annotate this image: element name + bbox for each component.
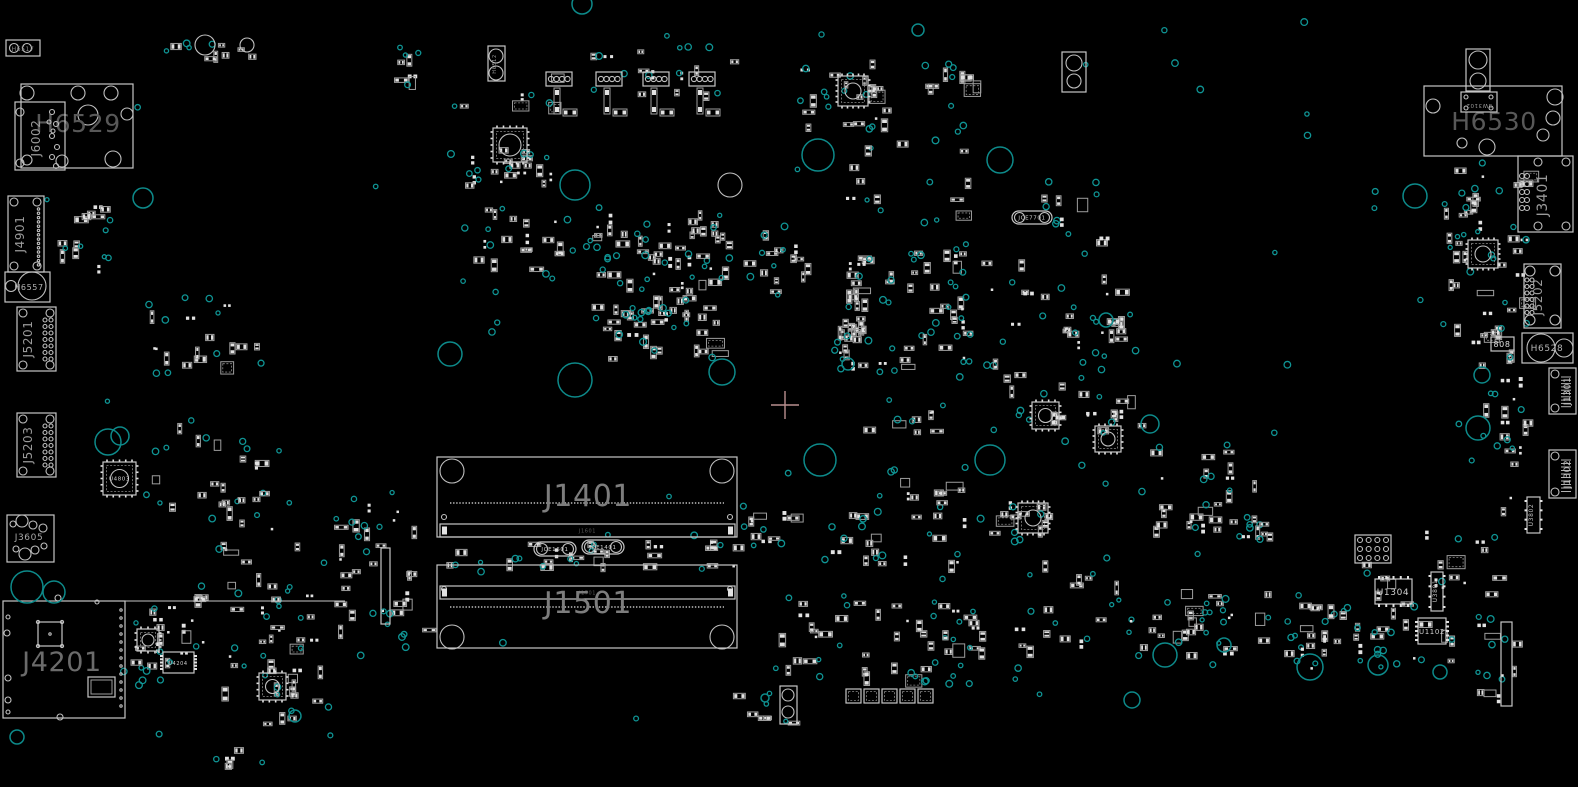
component-footprint (858, 363, 867, 368)
component-footprint (1483, 312, 1492, 315)
component-footprint (933, 535, 946, 541)
component-footprint (668, 223, 671, 233)
component-footprint (931, 411, 934, 414)
test-point (356, 534, 362, 540)
component-H6528[interactable]: H6528 (1522, 333, 1573, 363)
component-footprint (901, 478, 910, 487)
component-footprint (231, 663, 238, 667)
component-footprint (1224, 450, 1234, 454)
component-footprint (956, 561, 959, 564)
component-footprint (706, 338, 724, 348)
test-point (1237, 534, 1242, 539)
component-footprint (683, 296, 696, 301)
test-point (564, 216, 571, 223)
component-footprint (1300, 626, 1313, 632)
test-point (1476, 614, 1481, 619)
component-footprint (1056, 196, 1061, 206)
component-label: U1304 (1377, 588, 1410, 598)
test-point (878, 208, 883, 213)
component-footprint (839, 351, 842, 354)
test-point (1284, 361, 1291, 368)
component-label: J5203 (21, 426, 35, 464)
component-footprint (1189, 618, 1196, 626)
component-footprint (1077, 198, 1087, 211)
component-QF3[interactable] (1466, 238, 1501, 271)
test-point (156, 731, 162, 737)
component-footprint (953, 644, 965, 657)
component-footprint (1419, 621, 1432, 627)
component-footprint (648, 553, 662, 558)
mounting-hole (55, 595, 61, 601)
test-point (398, 45, 403, 50)
component-footprint (523, 219, 529, 227)
component-cluster (991, 359, 1146, 435)
component-JCE1601[interactable]: JCE1601 (534, 542, 576, 556)
test-point (960, 122, 966, 128)
component-footprint (466, 183, 474, 188)
test-point (946, 680, 953, 687)
component-J4901[interactable]: J4901 (8, 196, 44, 272)
component-footprint (908, 284, 913, 293)
component-footprint (854, 601, 866, 605)
test-point (892, 368, 897, 373)
component-footprint (1267, 533, 1273, 541)
component-footprint (517, 172, 526, 175)
component-footprint (906, 620, 909, 623)
component-QF8[interactable] (257, 671, 289, 703)
test-point (638, 317, 643, 322)
component-footprint (1161, 477, 1164, 480)
component-footprint (94, 205, 103, 209)
component-footprint (236, 344, 247, 350)
component-footprint (218, 43, 224, 47)
component-label: U3801 (1432, 580, 1439, 603)
test-point (242, 664, 246, 668)
test-point (321, 560, 326, 565)
component-footprint (1231, 614, 1234, 617)
test-point (1128, 312, 1133, 317)
component-footprint (269, 635, 273, 643)
component-footprint (924, 262, 930, 273)
component-H6517[interactable]: H6517 (6, 40, 40, 56)
component-QF5[interactable] (1093, 424, 1124, 455)
component-label: U1102 (1419, 628, 1445, 636)
component-footprint (1502, 406, 1508, 418)
component-footprint (1015, 628, 1025, 632)
test-point (865, 198, 869, 202)
test-point (1220, 608, 1225, 613)
component-label: J6002 (29, 119, 43, 157)
component-footprint (1507, 308, 1515, 312)
test-point (1204, 601, 1208, 605)
test-point (642, 252, 649, 259)
test-point (1439, 578, 1445, 584)
component-footprint (191, 619, 194, 622)
component-footprint (857, 317, 866, 321)
test-point (373, 184, 377, 188)
component-label: J1302 (1563, 460, 1573, 490)
test-point (258, 360, 264, 366)
test-point (189, 418, 194, 423)
component-footprint (526, 234, 529, 244)
test-point (961, 359, 966, 364)
component-cluster (715, 223, 787, 297)
component-footprint (182, 362, 191, 368)
component-footprint (603, 55, 613, 58)
component-footprint (1377, 627, 1389, 632)
test-point (1503, 300, 1507, 304)
component-footprint (698, 211, 702, 220)
via-circle (804, 444, 836, 476)
component-footprint (1501, 421, 1510, 425)
component-footprint (412, 526, 417, 538)
test-point (1028, 608, 1034, 614)
test-point (1132, 347, 1138, 353)
test-point (364, 549, 370, 555)
test-point (260, 760, 265, 765)
component-footprint (306, 595, 313, 598)
component-footprint (747, 712, 757, 717)
test-point (751, 543, 755, 547)
test-point (678, 46, 682, 50)
test-point (644, 221, 650, 227)
component-X808[interactable]: 808 (1491, 337, 1514, 351)
component-footprint (621, 231, 627, 237)
via-circle (1368, 655, 1388, 675)
test-point (1080, 359, 1086, 365)
component-footprint (1015, 372, 1026, 377)
test-point (232, 645, 238, 651)
component-J3401[interactable]: J3401 (1518, 156, 1573, 232)
component-label: JCE1401 (588, 545, 616, 551)
component-cluster (584, 205, 722, 322)
component-H6512[interactable]: H6512 (488, 46, 505, 81)
component-footprint (1391, 608, 1395, 619)
component-footprint (819, 631, 833, 637)
testpoint-scatter (45, 19, 1505, 737)
test-point (596, 205, 602, 211)
component-footprint (1130, 620, 1133, 623)
test-point (1322, 619, 1328, 625)
test-point (706, 44, 713, 51)
component-cluster (1139, 442, 1263, 539)
component-label: J5201 (21, 320, 35, 358)
board-canvas[interactable]: H6517H6529J6002J4901H6557J5201J5203J3605… (0, 0, 1578, 787)
component-footprint (502, 236, 512, 242)
component-footprint (1106, 293, 1109, 296)
component-footprint (1041, 294, 1049, 299)
component-footprint (1455, 168, 1466, 174)
via-circle (95, 429, 121, 455)
component-footprint (170, 503, 176, 511)
component-footprint (1513, 398, 1516, 401)
test-point (264, 614, 270, 620)
component-PG1[interactable] (1355, 535, 1391, 563)
component-footprint (1201, 524, 1205, 534)
component-footprint (339, 545, 344, 557)
component-footprint (1004, 375, 1010, 382)
component-footprint (659, 243, 671, 249)
test-point (1103, 481, 1108, 486)
test-point (1084, 636, 1089, 641)
component-footprint (456, 549, 467, 555)
component-footprint (654, 545, 663, 548)
component-footprint (1258, 638, 1269, 643)
component-footprint (1306, 643, 1314, 648)
component-footprint (224, 304, 231, 307)
component-J5201[interactable]: J5201 (17, 307, 56, 371)
test-point (1066, 232, 1071, 237)
test-point (214, 351, 220, 357)
test-point (890, 346, 895, 351)
test-point (1043, 204, 1049, 210)
test-point (957, 374, 963, 380)
component-J1301[interactable]: J1301 (1549, 368, 1576, 414)
component-footprint (806, 124, 811, 131)
test-point (951, 637, 955, 641)
component-footprint (952, 610, 959, 613)
component-footprint (921, 666, 931, 671)
test-point (817, 674, 823, 680)
component-JCE7701[interactable]: JCE7701 (1012, 211, 1052, 224)
power-header-footprint (596, 72, 627, 116)
component-footprint (914, 430, 920, 435)
component-footprint (257, 574, 261, 587)
component-footprint (1260, 522, 1269, 526)
component-U3801[interactable]: U3801 (1429, 572, 1446, 611)
test-point (798, 98, 804, 104)
test-point (334, 516, 338, 520)
component-J3605[interactable]: J3605 (7, 515, 54, 562)
component-footprint (500, 181, 503, 184)
test-point (487, 242, 493, 248)
test-point (63, 246, 67, 250)
test-point (45, 198, 49, 202)
test-point (950, 65, 956, 71)
component-footprint (863, 77, 867, 85)
component-U4803[interactable]: U4803 (101, 460, 139, 498)
test-point (685, 44, 691, 50)
component-footprint (805, 263, 811, 274)
component-cluster (846, 122, 971, 220)
component-footprint (171, 43, 181, 49)
test-point (377, 524, 382, 529)
component-DC2[interactable] (1466, 49, 1490, 91)
test-point (165, 370, 170, 375)
test-point (715, 90, 720, 95)
via-circle (975, 445, 1005, 475)
component-footprint (960, 252, 967, 256)
component-label: J1601 (578, 529, 596, 535)
component-footprint (1187, 629, 1196, 635)
component-U3802[interactable]: U3802 (1525, 497, 1543, 533)
component-footprint (1501, 379, 1510, 382)
test-point (835, 339, 841, 345)
component-footprint (153, 618, 163, 622)
component-cluster (448, 92, 561, 188)
component-footprint (721, 233, 725, 240)
test-point (1102, 354, 1106, 358)
component-footprint (1087, 414, 1090, 417)
component-footprint (969, 620, 979, 626)
component-cluster (146, 295, 260, 377)
test-point (684, 321, 689, 326)
test-point (1175, 639, 1181, 645)
component-footprint (471, 156, 474, 165)
test-point (1139, 488, 1145, 494)
component-footprint (1101, 331, 1104, 334)
component-footprint (793, 658, 801, 664)
test-point (630, 306, 635, 311)
test-point (1463, 205, 1469, 211)
component-label: U4204 (168, 661, 187, 667)
component-J1401[interactable]: J1601J1401 (437, 457, 737, 537)
test-point (1273, 250, 1277, 254)
component-footprint (1120, 410, 1124, 419)
component-footprint (1173, 631, 1181, 643)
component-label: H6530 (1451, 107, 1536, 136)
component-footprint (131, 660, 142, 665)
component-footprint (1190, 514, 1203, 520)
component-DC3[interactable] (780, 686, 797, 724)
via-circle (572, 0, 592, 14)
component-footprint (786, 665, 791, 675)
test-point (740, 503, 746, 509)
component-J5203[interactable]: J5203 (17, 413, 56, 477)
test-point (493, 289, 498, 294)
component-footprint (614, 305, 618, 315)
test-point (940, 576, 945, 581)
component-footprint (293, 669, 302, 673)
component-footprint (396, 511, 399, 514)
component-J1501[interactable]: J1701J1501 (437, 565, 737, 649)
component-cluster (58, 205, 113, 273)
component-footprint (1493, 576, 1507, 581)
test-point (1247, 525, 1253, 531)
test-point (244, 446, 250, 452)
via-circle (709, 359, 735, 385)
component-footprint (153, 347, 156, 350)
component-footprint (196, 435, 200, 447)
test-point (157, 677, 163, 683)
component-footprint (1513, 249, 1522, 254)
component-footprint (853, 337, 861, 343)
test-point (1442, 202, 1447, 207)
component-label: JCE1601 (540, 547, 568, 553)
mounting-hole (240, 38, 254, 52)
component-footprint (627, 333, 638, 337)
component-footprint (393, 519, 396, 522)
test-point (880, 297, 887, 304)
test-point (153, 370, 159, 376)
component-footprint (1077, 575, 1082, 586)
via-circle (438, 342, 462, 366)
component-footprint (222, 52, 229, 58)
component-J4201[interactable]: J4201 (3, 601, 125, 720)
test-point (416, 50, 421, 55)
component-label: H6512 (492, 54, 498, 73)
component-footprint (733, 693, 745, 698)
component-footprint (491, 259, 497, 272)
test-point (357, 652, 363, 658)
component-footprint (810, 95, 816, 108)
via-circle (802, 139, 834, 171)
test-point (1098, 366, 1104, 372)
component-footprint (878, 561, 886, 565)
test-point (877, 369, 883, 375)
component-footprint (892, 604, 902, 608)
component-cluster (798, 60, 892, 132)
component-footprint (1300, 603, 1312, 609)
component-footprint (857, 263, 865, 266)
test-point (594, 244, 600, 250)
component-footprint (638, 50, 644, 54)
component-footprint (1255, 613, 1264, 625)
test-point (966, 681, 972, 687)
test-point (1174, 360, 1181, 367)
component-DC1[interactable] (1062, 52, 1086, 92)
test-point (1472, 185, 1478, 191)
component-EDGE1[interactable] (1501, 622, 1512, 706)
component-label: 808 (1493, 340, 1510, 349)
test-point (632, 315, 637, 320)
via-circle (1153, 643, 1177, 667)
test-point (325, 704, 331, 710)
component-footprint (249, 54, 256, 59)
component-footprint (211, 482, 219, 486)
component-footprint (894, 632, 899, 641)
component-footprint (1158, 634, 1164, 638)
test-point (467, 171, 473, 177)
test-point (1459, 190, 1465, 196)
test-point (390, 491, 394, 495)
test-point (911, 257, 916, 262)
component-label: U3802 (1528, 504, 1535, 527)
test-point (1000, 339, 1005, 344)
component-H6557[interactable]: H6557 (5, 272, 50, 302)
test-point (1489, 641, 1495, 647)
component-footprint (675, 89, 680, 95)
test-point (741, 524, 746, 529)
component-J1302[interactable]: J1302 (1549, 450, 1576, 498)
test-point (932, 137, 939, 144)
component-footprint (864, 672, 870, 686)
test-point (591, 87, 596, 92)
component-footprint (1501, 508, 1505, 516)
component-footprint (1228, 617, 1231, 620)
component-footprint (607, 225, 612, 236)
component-footprint (423, 628, 436, 632)
component-footprint (1463, 251, 1467, 262)
test-point (139, 666, 144, 671)
component-footprint (229, 655, 232, 658)
component-footprint (609, 356, 618, 361)
test-point (948, 280, 953, 285)
component-footprint (904, 346, 914, 350)
component-footprint (307, 615, 314, 619)
component-footprint (874, 195, 880, 204)
component-footprint (1217, 601, 1224, 605)
component-J5202[interactable]: J5202 (1524, 264, 1561, 328)
component-footprint (872, 549, 879, 555)
component-footprint (1109, 330, 1114, 343)
test-point (784, 719, 788, 723)
component-footprint (638, 92, 646, 97)
test-point (772, 264, 776, 268)
component-footprint (603, 327, 611, 331)
component-footprint (222, 687, 228, 701)
test-point (954, 333, 960, 339)
